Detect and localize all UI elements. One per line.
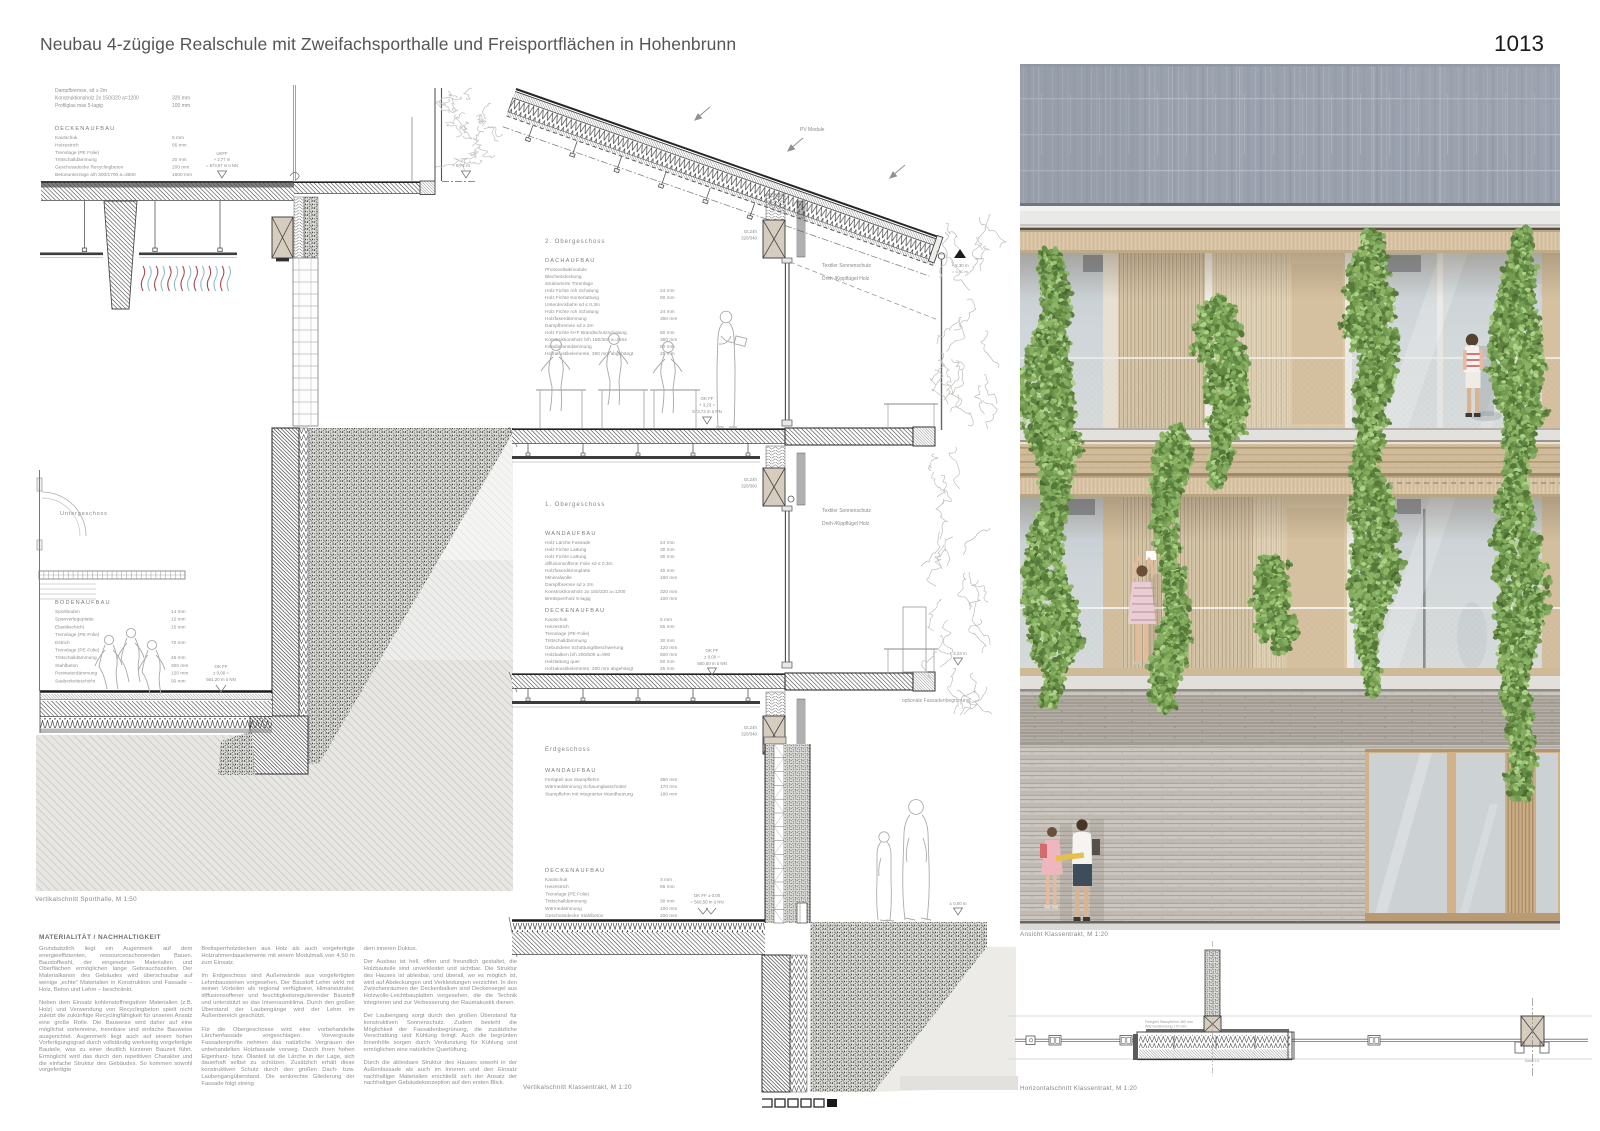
- svg-text:± 0,00 =: ± 0,00 =: [704, 655, 720, 660]
- svg-text:30 mm: 30 mm: [660, 899, 675, 905]
- svg-text:Holz Lärche Fassade: Holz Lärche Fassade: [545, 540, 591, 546]
- svg-text:15 mm: 15 mm: [171, 624, 186, 630]
- svg-text:Sauberkeitsschicht: Sauberkeitsschicht: [55, 678, 96, 684]
- svg-text:Elastikschicht: Elastikschicht: [55, 624, 85, 630]
- svg-text:200 mm: 200 mm: [172, 165, 189, 171]
- svg-text:320 mm: 320 mm: [172, 96, 190, 102]
- svg-text:25 mm: 25 mm: [660, 666, 675, 672]
- svg-text:100 mm: 100 mm: [660, 906, 677, 912]
- svg-text:GL24h: GL24h: [744, 725, 758, 730]
- svg-text:OK FF: OK FF: [215, 664, 228, 669]
- svg-text:Fertigteil Stampflehm 360 mm: Fertigteil Stampflehm 360 mm: [1145, 1020, 1193, 1024]
- svg-text:20 mm: 20 mm: [172, 157, 187, 163]
- svg-text:Untergeschoss: Untergeschoss: [60, 511, 108, 517]
- svg-text:OK FF: OK FF: [701, 396, 714, 401]
- svg-text:560,50 m ü NN: 560,50 m ü NN: [697, 661, 727, 666]
- svg-text:+ 3,23 =: + 3,23 =: [699, 403, 716, 408]
- svg-text:Dampfbremse sd ≥ 2m: Dampfbremse sd ≥ 2m: [545, 323, 593, 329]
- svg-text:Dampfbremse sd ≥ 2m: Dampfbremse sd ≥ 2m: [545, 582, 593, 588]
- svg-text:strukturierte Trennlage: strukturierte Trennlage: [545, 281, 593, 287]
- svg-text:50 mm: 50 mm: [171, 678, 186, 684]
- svg-text:Fertigteil aus Stampflehm: Fertigteil aus Stampflehm: [545, 777, 599, 783]
- svg-text:Betonunterzüge a/h 300/1700 a=: Betonunterzüge a/h 300/1700 a=3600: [55, 172, 136, 178]
- svg-text:Mineralwolle: Mineralwolle: [545, 575, 572, 581]
- svg-text:5 mm: 5 mm: [172, 135, 184, 141]
- svg-text:1600 mm: 1600 mm: [172, 172, 192, 178]
- svg-text:Kautschuk: Kautschuk: [545, 617, 568, 623]
- svg-text:Textiler Sonnenschutz: Textiler Sonnenschutz: [822, 508, 871, 514]
- svg-text:Unterdeckbahn sd ≤ 0,3m: Unterdeckbahn sd ≤ 0,3m: [545, 302, 600, 308]
- svg-text:Holzfaserdämmplatte: Holzfaserdämmplatte: [545, 568, 591, 574]
- svg-text:= 560,50 m ü NN: = 560,50 m ü NN: [690, 900, 723, 905]
- svg-text:+ 3,23 m: + 3,23 m: [949, 651, 967, 656]
- svg-text:Erdgeschoss: Erdgeschoss: [545, 747, 591, 753]
- svg-text:Trittschalldämmung: Trittschalldämmung: [545, 899, 587, 905]
- svg-text:320/340: 320/340: [741, 732, 757, 737]
- svg-text:3 mm: 3 mm: [660, 877, 672, 883]
- svg-text:Heizestrich: Heizestrich: [55, 142, 79, 148]
- svg-text:Profilglas max 5-lagig: Profilglas max 5-lagig: [55, 103, 103, 109]
- svg-text:Wärmedämmung Schaumglasschotte: Wärmedämmung Schaumglasschotter: [545, 784, 627, 790]
- svg-text:Heizestrich: Heizestrich: [545, 884, 569, 890]
- svg-text:320 mm: 320 mm: [660, 589, 677, 595]
- svg-text:40 mm: 40 mm: [660, 568, 675, 574]
- svg-text:Trennlage (PE-Folie): Trennlage (PE-Folie): [545, 631, 590, 637]
- svg-text:170 mm: 170 mm: [660, 784, 677, 790]
- svg-text:65 mm: 65 mm: [660, 884, 675, 890]
- svg-text:320/340: 320/340: [741, 236, 757, 241]
- svg-text:WANDAUFBAU: WANDAUFBAU: [545, 531, 597, 537]
- svg-text:70 mm: 70 mm: [171, 640, 186, 646]
- svg-text:65 mm: 65 mm: [172, 142, 187, 148]
- svg-text:Holz Fichte N+F Brandschutzsch: Holz Fichte N+F Brandschutzschalung: [545, 330, 627, 336]
- svg-text:360 mm: 360 mm: [660, 337, 677, 343]
- svg-text:Holzbalken b/h 200/600 a=900: Holzbalken b/h 200/600 a=900: [545, 652, 611, 658]
- svg-text:24 mm: 24 mm: [660, 288, 675, 294]
- svg-text:Brettsperrholz 5-lagig: Brettsperrholz 5-lagig: [545, 596, 591, 602]
- svg-text:100 mm: 100 mm: [660, 596, 677, 602]
- svg-text:120 mm: 120 mm: [660, 645, 677, 651]
- svg-text:DECKENAUFBAU: DECKENAUFBAU: [545, 868, 605, 874]
- svg-text:200 mm: 200 mm: [660, 913, 677, 919]
- svg-text:Heizestrich: Heizestrich: [545, 624, 569, 630]
- svg-text:Trennlage (PE Folie): Trennlage (PE Folie): [545, 891, 589, 897]
- svg-text:24 mm: 24 mm: [660, 309, 675, 315]
- svg-text:30 mm: 30 mm: [660, 554, 675, 560]
- svg-text:Konstruktionsholz 2x 150/320 a: Konstruktionsholz 2x 150/320 a=1200: [55, 96, 139, 102]
- svg-text:320/360: 320/360: [741, 484, 757, 489]
- svg-text:Perimeterdämmung: Perimeterdämmung: [55, 671, 97, 677]
- svg-text:Kautschuk: Kautschuk: [545, 877, 568, 883]
- svg-text:2. Obergeschoss: 2. Obergeschoss: [545, 239, 605, 245]
- svg-text:OK FF ± 0,00: OK FF ± 0,00: [694, 893, 721, 898]
- svg-text:Stahlbeton: Stahlbeton: [55, 663, 78, 669]
- svg-text:Geschossdecke Stahlbeton: Geschossdecke Stahlbeton: [545, 913, 604, 919]
- svg-text:DECKENAUFBAU: DECKENAUFBAU: [545, 608, 605, 614]
- svg-text:60 mm: 60 mm: [660, 330, 675, 336]
- svg-text:Holz Fichte Lattung: Holz Fichte Lattung: [545, 547, 587, 553]
- svg-text:14 mm: 14 mm: [171, 609, 186, 615]
- svg-text:Holz Fichte roh Schalung: Holz Fichte roh Schalung: [545, 288, 599, 294]
- svg-text:DACHAUFBAU: DACHAUFBAU: [545, 258, 596, 264]
- svg-text:Trennlage (PE-Folie): Trennlage (PE-Folie): [55, 648, 100, 654]
- svg-text:Estrich: Estrich: [55, 640, 70, 646]
- svg-text:Trittschalldämmung: Trittschalldämmung: [55, 157, 97, 163]
- svg-text:= 573,97 m ü NN: = 573,97 m ü NN: [206, 163, 238, 168]
- svg-text:Spanverlegeplatte: Spanverlegeplatte: [55, 617, 94, 623]
- svg-text:Detail 1:5: Detail 1:5: [1525, 1059, 1539, 1063]
- svg-text:30 mm: 30 mm: [660, 638, 675, 644]
- svg-text:Wärmedämmung: Wärmedämmung: [545, 906, 582, 912]
- svg-text:180 mm: 180 mm: [660, 791, 677, 797]
- svg-text:Kautschuk: Kautschuk: [55, 135, 78, 141]
- svg-text:DECKENAUFBAU: DECKENAUFBAU: [55, 126, 115, 132]
- svg-text:BODENAUFBAU: BODENAUFBAU: [55, 600, 111, 606]
- svg-text:65 mm: 65 mm: [660, 624, 675, 630]
- svg-text:12 mm: 12 mm: [171, 617, 186, 623]
- svg-text:+ 2,77 m: + 2,77 m: [214, 157, 231, 162]
- svg-text:30 mm: 30 mm: [660, 547, 675, 553]
- svg-text:Holzakustikelemente, 200 mm ab: Holzakustikelemente, 200 mm abgehängt: [545, 666, 634, 672]
- svg-text:Trittschalldämmung: Trittschalldämmung: [55, 655, 97, 661]
- svg-text:561,20 m ü NN: 561,20 m ü NN: [206, 677, 236, 682]
- svg-text:UKFF: UKFF: [217, 151, 228, 156]
- svg-text:1. Obergeschoss: 1. Obergeschoss: [545, 502, 605, 508]
- svg-text:± 0,00 m: ± 0,00 m: [949, 901, 966, 906]
- svg-text:Holzfaserdämmung: Holzfaserdämmung: [545, 316, 587, 322]
- svg-text:Trennlage (PE Folie): Trennlage (PE Folie): [55, 150, 99, 156]
- svg-text:100 mm: 100 mm: [172, 103, 190, 109]
- svg-text:Holz Fichte roh Schalung: Holz Fichte roh Schalung: [545, 309, 599, 315]
- svg-text:± 0,00 =: ± 0,00 =: [213, 671, 229, 676]
- svg-text:5 mm: 5 mm: [660, 617, 672, 623]
- svg-text:OK FF: OK FF: [706, 648, 719, 653]
- svg-text:GL24h: GL24h: [744, 477, 758, 482]
- svg-text:Konstruktionsholz 2x 150/320 a: Konstruktionsholz 2x 150/320 a=1200: [545, 589, 626, 595]
- svg-text:Geschossdecke Recyclingbeton: Geschossdecke Recyclingbeton: [55, 165, 124, 171]
- svg-text:Gebundene Schüttung/Beschwerun: Gebundene Schüttung/Beschwerung: [545, 645, 624, 651]
- svg-text:Blecheindeckung: Blecheindeckung: [545, 274, 582, 280]
- svg-text:Sportboden: Sportboden: [55, 609, 80, 615]
- svg-text:120 mm: 120 mm: [171, 671, 188, 677]
- svg-text:45 mm: 45 mm: [171, 655, 186, 661]
- svg-text:PV Module: PV Module: [800, 127, 825, 133]
- svg-text:GL24h: GL24h: [744, 229, 758, 234]
- svg-text:WANDAUFBAU: WANDAUFBAU: [545, 768, 597, 774]
- svg-text:600 mm: 600 mm: [660, 652, 677, 658]
- svg-text:50 mm: 50 mm: [660, 659, 675, 665]
- svg-text:Dreh-/Kippflügel Holz: Dreh-/Kippflügel Holz: [822, 521, 870, 527]
- svg-text:Dampfbremse, sd ≥ 2m: Dampfbremse, sd ≥ 2m: [55, 88, 107, 94]
- svg-text:diffusionsoffene Folie sd ≤ 0,: diffusionsoffene Folie sd ≤ 0,3m: [545, 561, 613, 567]
- svg-text:80 mm: 80 mm: [660, 295, 675, 301]
- svg-text:Stampflehm mit integrierter Wa: Stampflehm mit integrierter Wandheizung: [545, 791, 633, 797]
- svg-text:Trennlage (PE-Folie): Trennlage (PE-Folie): [55, 632, 100, 638]
- svg-text:Holz Fichte Lattung: Holz Fichte Lattung: [545, 554, 587, 560]
- svg-text:300 mm: 300 mm: [171, 663, 188, 669]
- svg-text:Photovoltaikmodule: Photovoltaikmodule: [545, 267, 587, 273]
- svg-text:360 mm: 360 mm: [660, 316, 677, 322]
- svg-text:Trittschalldämmung: Trittschalldämmung: [545, 638, 587, 644]
- svg-text:Wärmedämmung 170 mm: Wärmedämmung 170 mm: [1145, 1025, 1187, 1029]
- svg-text:optionale Fassadenbegrünung: optionale Fassadenbegrünung: [902, 698, 970, 704]
- svg-text:Holzlattung quer: Holzlattung quer: [545, 659, 580, 665]
- svg-text:Dreh-/Kippflügel Holz: Dreh-/Kippflügel Holz: [822, 276, 870, 282]
- svg-text:360 mm: 360 mm: [660, 777, 677, 783]
- svg-text:Textiler Sonnenschutz: Textiler Sonnenschutz: [822, 263, 871, 269]
- svg-text:24 mm: 24 mm: [660, 540, 675, 546]
- svg-text:Holz Fichte Konterlattung: Holz Fichte Konterlattung: [545, 295, 599, 301]
- svg-text:160 mm: 160 mm: [660, 575, 677, 581]
